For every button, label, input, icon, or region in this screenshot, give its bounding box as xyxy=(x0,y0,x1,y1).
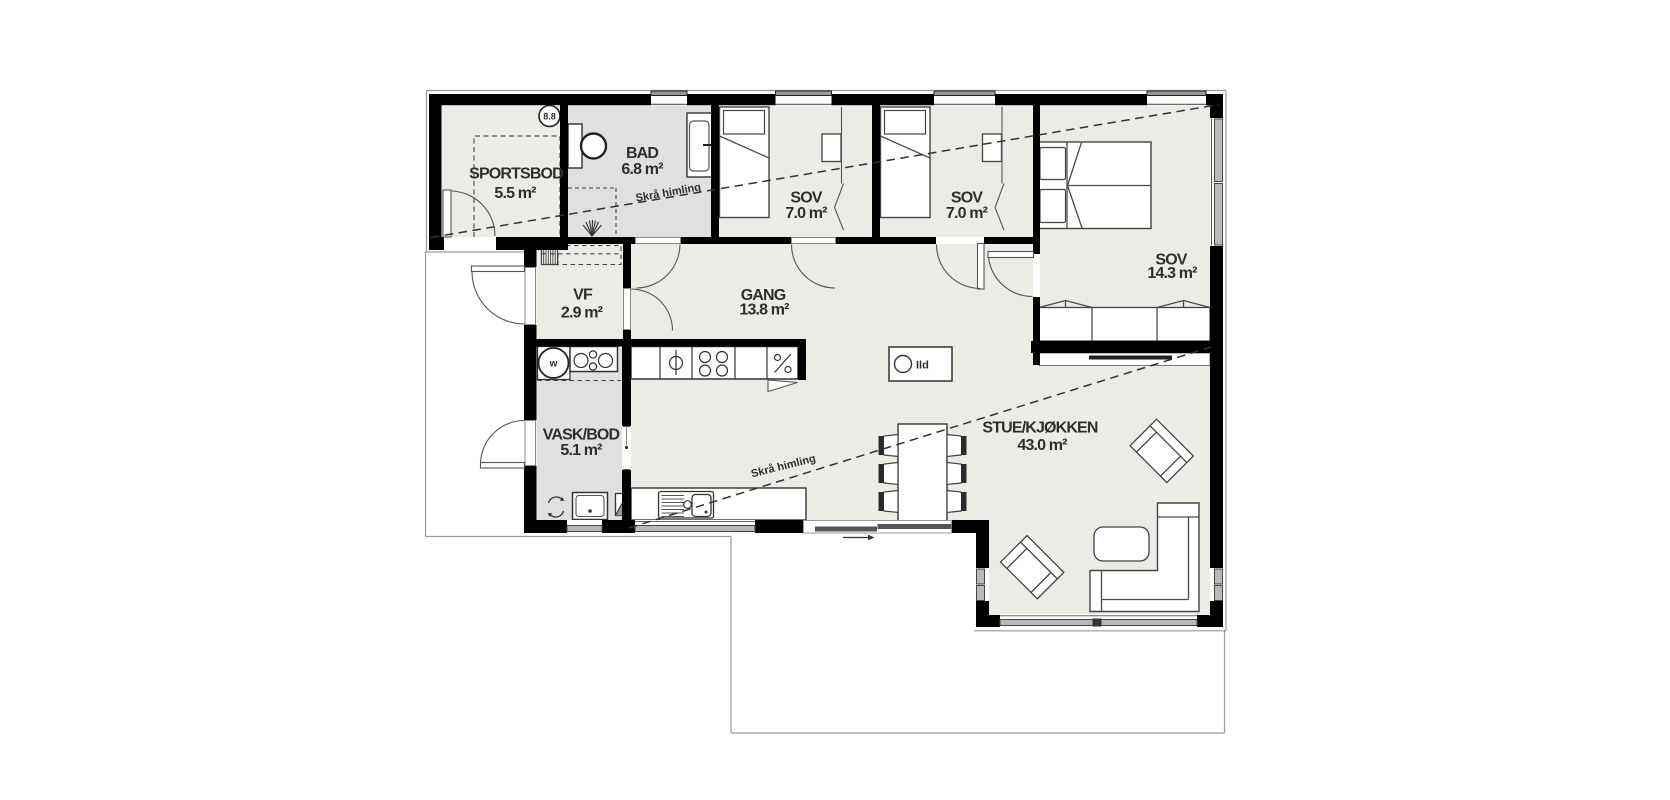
svg-text:7.0 m²: 7.0 m² xyxy=(946,205,988,222)
svg-text:5.5 m²: 5.5 m² xyxy=(494,185,536,202)
svg-text:VF: VF xyxy=(573,287,593,304)
svg-text:w: w xyxy=(549,359,558,370)
svg-text:7.0 m²: 7.0 m² xyxy=(785,205,827,222)
svg-text:6.8 m²: 6.8 m² xyxy=(621,161,663,178)
svg-text:43.0 m²: 43.0 m² xyxy=(1017,437,1067,454)
svg-text:5.1 m²: 5.1 m² xyxy=(560,442,602,459)
svg-text:13.8 m²: 13.8 m² xyxy=(739,302,789,319)
svg-text:SOV: SOV xyxy=(790,190,822,207)
svg-text:2.9 m²: 2.9 m² xyxy=(561,305,603,322)
svg-text:SPORTSBOD: SPORTSBOD xyxy=(469,166,563,183)
svg-text:SOV: SOV xyxy=(951,190,983,207)
svg-text:VASK/BOD: VASK/BOD xyxy=(543,427,620,444)
svg-text:STUE/KJØKKEN: STUE/KJØKKEN xyxy=(982,420,1097,437)
svg-text:Ild: Ild xyxy=(916,360,929,372)
svg-text:BAD: BAD xyxy=(626,145,658,162)
svg-text:8.8: 8.8 xyxy=(543,112,556,122)
svg-text:14.3 m²: 14.3 m² xyxy=(1147,265,1197,282)
